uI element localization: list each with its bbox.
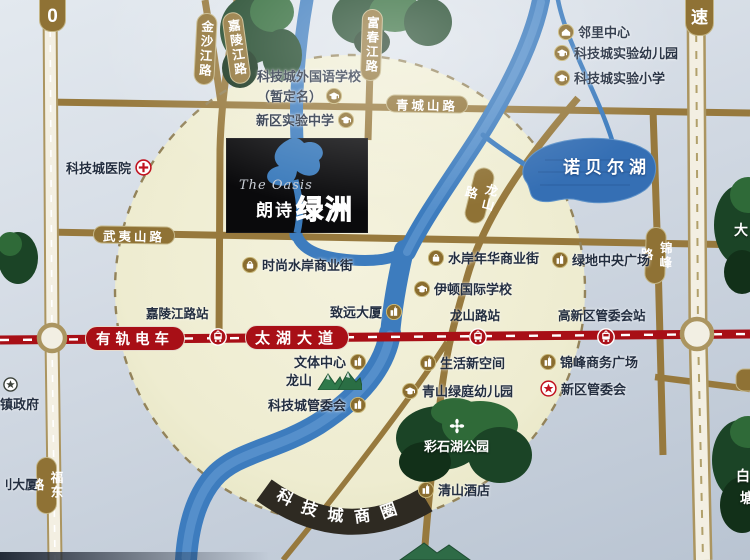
trees-left-edge: [0, 232, 38, 284]
poi-waterfront-street: 水岸年华商业街: [428, 248, 539, 267]
poi-label: 新区管委会: [561, 379, 626, 398]
poi-label: 致远大厦: [330, 302, 382, 321]
poi-label: 时尚水岸商业街: [262, 255, 353, 274]
mountain-icon: [316, 368, 362, 390]
roundabout-east: [682, 319, 712, 349]
building-icon: [350, 397, 366, 413]
location-map: 科技城商圈 The Oasis 朗诗 绿洲 诺贝尔湖 0 速 有轨电车 太湖大道…: [0, 0, 750, 560]
poi-jinfeng-biz-plaza: 锦峰商务广场: [540, 352, 638, 371]
star-dark-icon: [3, 377, 18, 392]
building-icon: [540, 354, 556, 370]
poi-eton-school: 伊顿国际学校: [414, 279, 512, 298]
building-icon: [552, 252, 568, 268]
project-logo: The Oasis 朗诗 绿洲: [226, 138, 368, 233]
poi-tech-city-committee: 科技城管委会: [268, 395, 366, 414]
fragment-bai: 白: [736, 466, 750, 486]
poi-label: 镇政府: [0, 394, 39, 413]
poi-label: 科技城外国语学校: [257, 66, 361, 85]
logo-name-cn1: 朗诗: [256, 196, 294, 221]
poi-label: 彩石湖公园: [424, 436, 489, 455]
poi-life-new-space: 生活新空间: [420, 353, 505, 372]
logo-name-cn2: 绿洲: [296, 188, 354, 227]
poi-new-district-committee: 新区管委会: [540, 379, 626, 398]
tram-line-badge: 有轨电车: [85, 326, 185, 351]
poi-label: 生活新空间: [440, 353, 505, 372]
poi-label: 龙山: [286, 370, 312, 389]
school-icon: [326, 88, 342, 104]
road-longshan-label: 龙山路: [462, 165, 496, 225]
building-icon: [418, 482, 434, 498]
poi-label: 绿地中央广场: [572, 250, 650, 269]
poi-label: 邻里中心: [578, 22, 630, 41]
poi-longshan-hill: 龙山: [286, 368, 362, 390]
hospital-icon: [135, 159, 152, 176]
poi-neighborhood-center: 邻里中心: [558, 22, 630, 41]
poi-greenland-plaza: 绿地中央广场: [552, 250, 650, 269]
poi-new-district-school: 新区实验中学: [256, 110, 354, 129]
bottom-mountain: [400, 543, 470, 560]
poi-qingshan-hotel: 清山酒店: [418, 480, 490, 499]
poi-tech-city-hospital: 科技城医院: [66, 158, 152, 177]
taihu-avenue-badge: 太湖大道: [245, 325, 349, 350]
road-fuchunjiang-label: 富春江路: [360, 9, 384, 82]
poi-exp-primary-school: 科技城实验小学: [554, 68, 665, 87]
poi-label: 科技城实验幼儿园: [574, 43, 678, 62]
school-icon: [554, 70, 570, 86]
poi-label: 新区实验中学: [256, 110, 334, 129]
poi-qingshan-kindergarten: 青山绿庭幼儿园: [402, 381, 513, 400]
poi-label: 水岸年华商业街: [448, 248, 539, 267]
school-icon: [402, 383, 418, 399]
star-red-icon: [540, 380, 557, 397]
fragment-tower: 刂大厦: [0, 474, 38, 493]
school-icon: [338, 112, 354, 128]
school-icon: [554, 45, 570, 61]
poi-caishihu-park: 彩石湖公园: [424, 418, 489, 455]
roundabout-west: [39, 325, 65, 351]
building-icon: [386, 304, 402, 320]
road-qingchengshan-label: 青城山路: [386, 94, 468, 113]
poi-label: 锦峰商务广场: [560, 352, 638, 371]
community-icon: [558, 24, 574, 40]
poi-exp-kindergarten: 科技城实验幼儿园: [554, 43, 678, 62]
poi-foreign-lang-school: 科技城外国语学校（暂定名）: [257, 66, 361, 105]
shop-icon: [428, 250, 444, 266]
tram-station-icon: [209, 328, 227, 346]
station-jialingjiang-label: 嘉陵江路站: [146, 303, 209, 322]
road-wuyishan-label: 武夷山路: [93, 225, 175, 244]
poi-town-government: 镇政府: [0, 377, 39, 413]
road-fudong-label: 福东路: [36, 457, 57, 514]
flower-icon: [449, 418, 465, 434]
ring-road-badge: 0: [39, 0, 66, 32]
school-icon: [414, 281, 430, 297]
station-longshanlu-label: 龙山路站: [450, 305, 500, 324]
poi-label: 科技城管委会: [268, 395, 346, 414]
poi-label: 清山酒店: [438, 480, 490, 499]
poi-label: 伊顿国际学校: [434, 279, 512, 298]
photo-edge-shadow: [0, 552, 270, 560]
trees-top-right: [332, 0, 452, 56]
tram-station-icon: [597, 328, 615, 346]
road-jinshajiang-label: 金沙江路: [193, 12, 218, 85]
highway-badge: 速: [685, 0, 714, 36]
poi-label: 科技城实验小学: [574, 68, 665, 87]
poi-label: 青山绿庭幼儿园: [422, 381, 513, 400]
poi-zhiyuan-tower: 致远大厦: [330, 302, 402, 321]
poi-label-line2: （暂定名）: [257, 86, 322, 105]
fragment-da: 大: [734, 220, 748, 240]
shop-icon: [242, 257, 258, 273]
tram-station-icon: [469, 328, 487, 346]
poi-label: 科技城医院: [66, 158, 131, 177]
poi-fashion-waterfront: 时尚水岸商业街: [242, 255, 353, 274]
station-gaoxinqu-label: 高新区管委会站: [558, 305, 646, 324]
lake-label: 诺贝尔湖: [563, 153, 651, 178]
fragment-tang: 塘: [740, 488, 750, 508]
building-icon: [420, 355, 436, 371]
